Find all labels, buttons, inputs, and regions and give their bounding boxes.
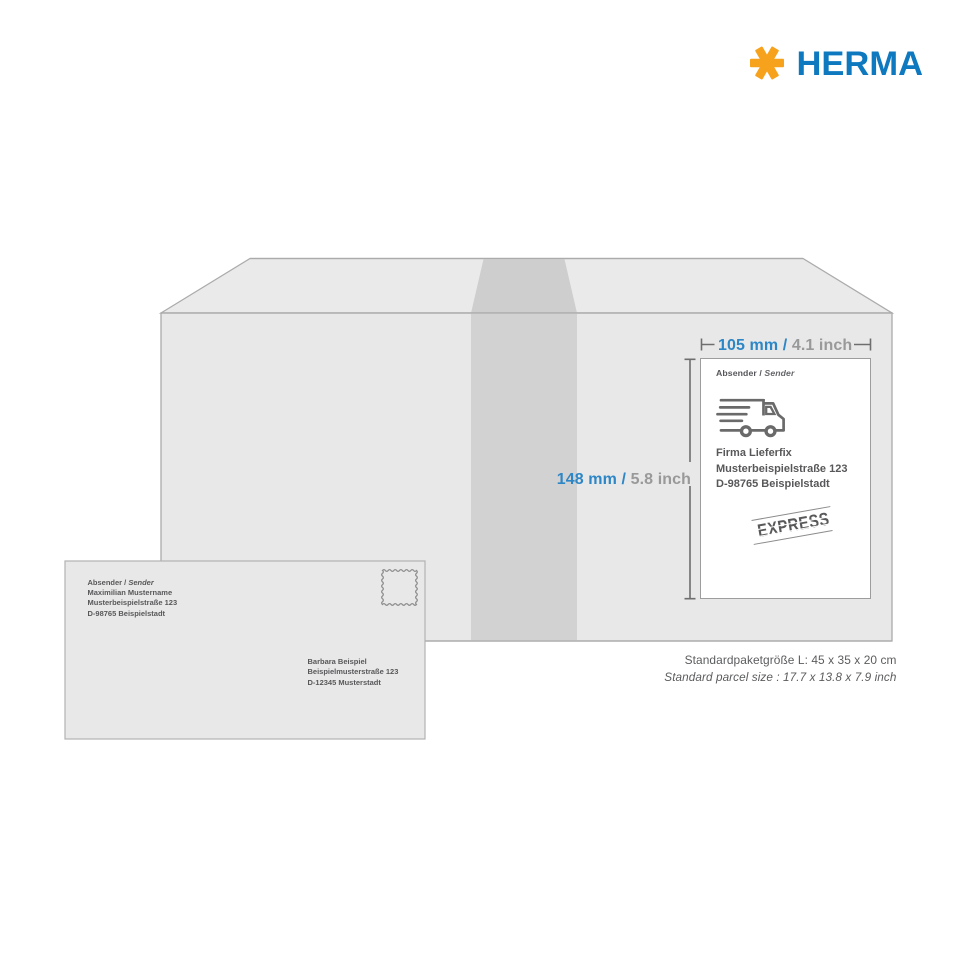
svg-text:HERMA: HERMA bbox=[797, 45, 924, 83]
